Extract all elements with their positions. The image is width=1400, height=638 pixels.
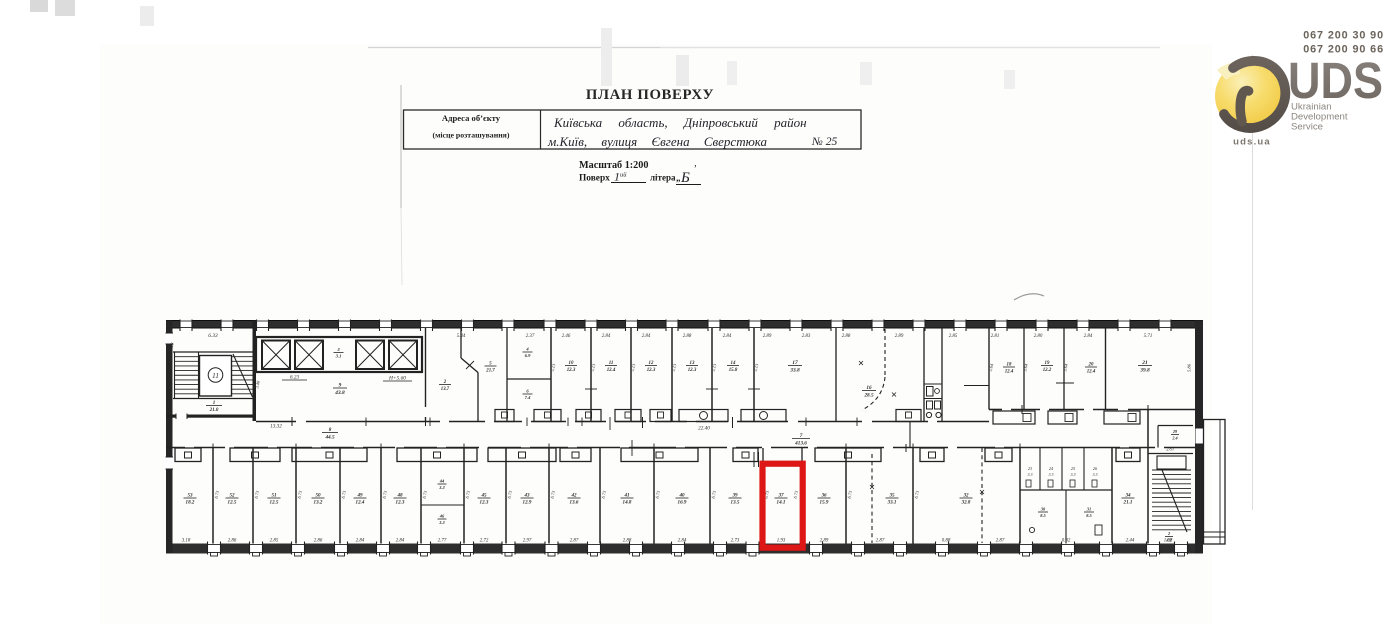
svg-text:2.88: 2.88 [842, 334, 851, 339]
svg-text:2.84: 2.84 [1084, 334, 1093, 339]
svg-text:24: 24 [1049, 466, 1053, 471]
svg-text:2: 2 [1167, 531, 1170, 536]
svg-text:2.37: 2.37 [526, 334, 535, 339]
svg-text:3.3: 3.3 [1028, 472, 1033, 477]
svg-text:2.88: 2.88 [683, 334, 692, 339]
svg-text:18.2: 18.2 [186, 500, 195, 506]
svg-text:12.9: 12.9 [523, 500, 532, 506]
svg-text:11: 11 [212, 371, 219, 380]
svg-text:5.71: 5.71 [1144, 334, 1153, 339]
svg-text:12.5: 12.5 [228, 500, 237, 506]
svg-text:44: 44 [439, 479, 445, 484]
svg-text:16.9: 16.9 [678, 500, 687, 506]
svg-text:2.86: 2.86 [314, 539, 323, 544]
svg-text:літера: літера [650, 173, 676, 183]
svg-text:2.89: 2.89 [820, 539, 829, 544]
svg-text:15.9: 15.9 [820, 500, 829, 506]
svg-text:6.33: 6.33 [208, 333, 218, 339]
svg-text:2.77: 2.77 [438, 539, 447, 544]
svg-text:UDS: UDS [1288, 52, 1383, 109]
svg-text:28.5: 28.5 [863, 392, 873, 398]
svg-text:0.88: 0.88 [942, 539, 951, 544]
svg-text:ПЛАН ПОВЕРХУ: ПЛАН ПОВЕРХУ [586, 87, 714, 103]
svg-text:12.5: 12.5 [270, 500, 279, 506]
svg-text:29: 29 [1172, 429, 1178, 434]
svg-text:2.46: 2.46 [562, 334, 571, 339]
svg-text:2.80: 2.80 [1034, 334, 1043, 339]
svg-text:13.7: 13.7 [441, 387, 450, 392]
svg-text:Service: Service [1291, 122, 1323, 133]
svg-text:2.87: 2.87 [876, 539, 885, 544]
svg-text:12.3: 12.3 [567, 368, 576, 373]
svg-text:(місце розташування): (місце розташування) [432, 131, 509, 140]
svg-text:Н+5.60: Н+5.60 [388, 376, 406, 382]
svg-text:12.4: 12.4 [356, 500, 365, 506]
svg-text:15.8: 15.8 [729, 368, 738, 373]
svg-text:2.89: 2.89 [763, 334, 772, 339]
svg-text:3.3: 3.3 [1049, 472, 1054, 477]
svg-text:1.93: 1.93 [777, 539, 786, 544]
svg-text:5.86: 5.86 [1187, 363, 1192, 372]
svg-text:44.5: 44.5 [324, 434, 334, 440]
svg-text:2.97: 2.97 [523, 539, 532, 544]
svg-text:Київська область, Дніпровський: Київська область, Дніпровський район [553, 115, 807, 130]
svg-text:2.85: 2.85 [949, 334, 958, 339]
svg-text:21.1: 21.1 [1123, 500, 1133, 506]
svg-text:3.1: 3.1 [335, 354, 342, 359]
svg-text:6.9: 6.9 [525, 353, 531, 358]
svg-text:м.Київ, вулиця Євгена Сверстюк: м.Київ, вулиця Євгена Сверстюка [547, 134, 768, 149]
svg-text:46: 46 [439, 514, 445, 519]
svg-text:8.5: 8.5 [1040, 513, 1046, 518]
svg-text:4.2: 4.2 [1165, 537, 1171, 542]
svg-text:2.84: 2.84 [678, 539, 687, 544]
svg-text:2.84: 2.84 [602, 334, 611, 339]
svg-text:12.3: 12.3 [480, 500, 489, 506]
svg-text:5.44: 5.44 [457, 334, 466, 339]
svg-text:2.84: 2.84 [723, 334, 732, 339]
svg-text:12.3: 12.3 [688, 368, 697, 373]
svg-text:32.8: 32.8 [961, 500, 971, 506]
svg-text:2.4: 2.4 [1171, 435, 1177, 440]
svg-text:2.84: 2.84 [396, 539, 405, 544]
svg-text:2.72: 2.72 [480, 539, 489, 544]
svg-text:31: 31 [1086, 507, 1091, 512]
svg-text:12.3: 12.3 [647, 368, 656, 373]
svg-text:Поверх: Поверх [579, 174, 610, 184]
svg-text:13.5: 13.5 [731, 500, 740, 506]
svg-text:№ 25: № 25 [811, 136, 837, 148]
svg-text:3.3: 3.3 [438, 520, 445, 525]
svg-text:3.3: 3.3 [1093, 472, 1098, 477]
svg-text:33.8: 33.8 [789, 368, 800, 374]
svg-text:ий: ий [620, 172, 627, 179]
svg-text:6.23: 6.23 [290, 375, 299, 381]
svg-text:3.3: 3.3 [1071, 472, 1076, 477]
svg-text:2.83: 2.83 [1166, 447, 1173, 452]
svg-text:Адреса об’єкту: Адреса об’єкту [442, 113, 501, 123]
svg-text:33.1: 33.1 [887, 500, 897, 506]
svg-text:413.6: 413.6 [794, 440, 807, 446]
svg-text:13.6: 13.6 [570, 500, 579, 506]
svg-text:2.83: 2.83 [802, 334, 811, 339]
svg-text:12.4: 12.4 [607, 368, 616, 373]
svg-text:14.8: 14.8 [623, 500, 632, 506]
svg-text:2.87: 2.87 [996, 539, 1005, 544]
svg-text:2.88: 2.88 [623, 539, 632, 544]
svg-text:067 200 90 66: 067 200 90 66 [1303, 44, 1384, 56]
svg-text:43.8: 43.8 [334, 390, 345, 396]
svg-text:2.73: 2.73 [731, 539, 740, 544]
svg-text:2.44: 2.44 [1126, 539, 1135, 544]
svg-text:2.87: 2.87 [570, 539, 579, 544]
svg-text:8.5: 8.5 [1086, 513, 1092, 518]
svg-text:uds.ua: uds.ua [1233, 137, 1271, 148]
svg-text:2.86: 2.86 [228, 539, 237, 544]
svg-text:25: 25 [1071, 466, 1075, 471]
svg-text:Б: Б [680, 170, 690, 186]
svg-text:3.3: 3.3 [438, 485, 445, 490]
svg-text:13.2: 13.2 [314, 500, 323, 506]
svg-text:14.1: 14.1 [777, 500, 786, 506]
svg-text:21.0: 21.0 [209, 408, 219, 413]
svg-text:12.2: 12.2 [1043, 368, 1052, 373]
svg-text:7.4: 7.4 [525, 395, 531, 400]
svg-text:22.40: 22.40 [698, 425, 710, 432]
svg-text:2.81: 2.81 [991, 334, 1000, 339]
svg-text:2.85: 2.85 [270, 539, 279, 544]
svg-text:2.84: 2.84 [642, 334, 651, 339]
svg-text:21.7: 21.7 [485, 368, 495, 373]
svg-text:39.8: 39.8 [1139, 368, 1150, 374]
svg-text:2.89: 2.89 [895, 334, 904, 339]
svg-text:23: 23 [1028, 466, 1032, 471]
svg-text:3.18: 3.18 [182, 539, 191, 544]
svg-text:2.84: 2.84 [356, 539, 365, 544]
svg-text:13.32: 13.32 [270, 424, 282, 430]
svg-text:12.4: 12.4 [1087, 370, 1096, 375]
svg-text:067 200 30 90: 067 200 30 90 [1303, 30, 1384, 42]
svg-text:12.4: 12.4 [1005, 370, 1014, 375]
svg-text:30: 30 [1040, 507, 1046, 512]
svg-text:12.3: 12.3 [396, 500, 405, 506]
